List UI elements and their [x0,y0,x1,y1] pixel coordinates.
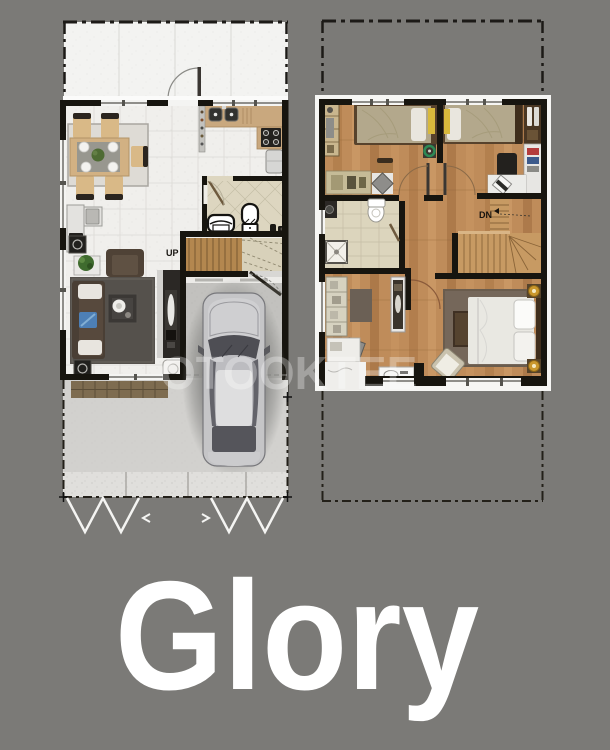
svg-text:Glory: Glory [115,550,479,722]
svg-text:OTOOKTEE: OTOOKTEE [160,347,417,399]
svg-text:DN: DN [479,210,492,220]
svg-text:UP: UP [166,248,179,258]
